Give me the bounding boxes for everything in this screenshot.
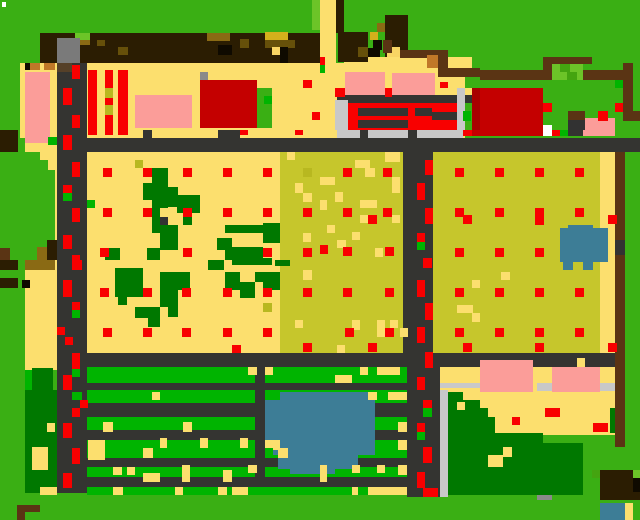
building xyxy=(417,130,463,138)
building xyxy=(457,402,465,410)
crop-dot xyxy=(263,328,272,337)
building xyxy=(480,360,533,392)
building xyxy=(335,100,348,130)
field-speck xyxy=(248,465,257,473)
grass-dot xyxy=(615,80,623,88)
road-dash xyxy=(423,447,432,463)
building xyxy=(480,417,495,433)
crop-dot xyxy=(143,288,152,297)
field-speck xyxy=(143,448,153,458)
field-speck xyxy=(360,200,377,208)
hedge-tree xyxy=(312,0,320,30)
crop-dot xyxy=(183,168,192,177)
crop-dot xyxy=(223,208,232,217)
crop-dot xyxy=(223,328,232,337)
field-speck xyxy=(320,177,335,185)
grass-blob xyxy=(25,370,32,390)
road-segment xyxy=(337,95,490,103)
road-dash xyxy=(72,115,80,128)
crop-dot xyxy=(455,248,464,257)
crop-dot xyxy=(455,328,464,337)
building xyxy=(408,130,417,138)
fence xyxy=(427,55,438,68)
crop-patch xyxy=(152,200,160,233)
road-dash xyxy=(417,183,425,200)
fence xyxy=(623,111,640,121)
hedge-tree xyxy=(272,47,280,55)
building xyxy=(472,88,480,130)
crop-dot xyxy=(535,168,544,177)
fence xyxy=(560,63,570,72)
grass-blob xyxy=(40,487,57,495)
crop-dot xyxy=(385,288,394,297)
road-dash xyxy=(417,327,425,343)
building xyxy=(358,120,408,128)
hedge-tree xyxy=(17,512,25,520)
road-dash xyxy=(72,310,80,318)
crop-dot xyxy=(383,168,392,177)
field-speck xyxy=(303,233,311,242)
crop-dot xyxy=(545,408,560,417)
building xyxy=(440,390,448,497)
hedge-tree xyxy=(97,40,105,46)
building xyxy=(465,77,480,88)
crop-dot xyxy=(143,208,152,217)
pond xyxy=(568,225,593,228)
field-speck xyxy=(398,465,407,475)
pond xyxy=(290,469,335,474)
crop-dot xyxy=(263,168,272,177)
road-dash xyxy=(72,369,80,377)
pond xyxy=(278,448,288,458)
crop-patch xyxy=(143,183,160,200)
road-dash xyxy=(417,242,425,250)
field-speck xyxy=(232,487,248,495)
grass-blob xyxy=(25,390,57,493)
crop-patch xyxy=(118,297,127,305)
crop-dot xyxy=(335,88,345,97)
crop-patch xyxy=(160,225,178,250)
hedge-tree xyxy=(0,278,18,288)
field-speck xyxy=(390,320,398,328)
field-speck xyxy=(385,152,400,162)
grass-dot xyxy=(48,137,57,145)
hedge-tree xyxy=(377,23,385,32)
crop-dot xyxy=(143,168,152,177)
field-speck xyxy=(392,177,400,193)
road-dash xyxy=(63,185,72,193)
fence xyxy=(480,70,552,80)
field-speck xyxy=(127,467,135,475)
crop-dot xyxy=(303,288,312,297)
field-speck xyxy=(377,367,400,375)
pond xyxy=(560,228,608,262)
crop-dot xyxy=(535,328,544,337)
road-dash xyxy=(63,423,72,438)
field-speck xyxy=(143,473,160,482)
crop-patch xyxy=(135,307,160,318)
field-speck xyxy=(335,375,352,383)
crop-patch xyxy=(160,168,168,208)
building xyxy=(600,383,615,391)
crop-dot xyxy=(320,245,328,254)
crop-dot xyxy=(312,112,320,120)
crop-dot xyxy=(543,103,552,112)
building xyxy=(360,130,368,138)
hedge-tree xyxy=(0,130,18,152)
crop-dot xyxy=(303,248,312,257)
building xyxy=(552,367,600,392)
crop-dot xyxy=(575,288,584,297)
field-speck xyxy=(183,422,192,432)
grass-blob xyxy=(47,423,55,432)
field-speck xyxy=(388,392,407,400)
building xyxy=(135,95,192,128)
field-speck xyxy=(327,225,335,233)
road-segment xyxy=(87,383,407,390)
field-speck xyxy=(303,270,312,280)
field-speck xyxy=(360,215,368,223)
crop-dot xyxy=(103,208,112,217)
building xyxy=(583,130,615,136)
crop-dot xyxy=(608,343,617,352)
building xyxy=(480,88,543,130)
road-dash xyxy=(72,392,82,400)
grass-blob xyxy=(48,170,55,240)
hedge-tree xyxy=(373,40,382,50)
crop-dot xyxy=(72,260,82,270)
field-speck xyxy=(375,248,383,257)
pond xyxy=(625,503,633,520)
crop-dot xyxy=(593,423,608,432)
road-dash xyxy=(425,160,433,175)
building xyxy=(200,80,257,128)
field-speck xyxy=(287,152,295,160)
crop-dot xyxy=(263,248,272,257)
crop-dot xyxy=(495,208,504,217)
building xyxy=(610,408,615,433)
building xyxy=(358,108,408,116)
road-dash xyxy=(57,327,65,335)
crop-dot xyxy=(368,343,377,352)
road-dash xyxy=(417,472,425,488)
hedge-tree xyxy=(240,39,249,48)
crop-dot xyxy=(440,82,448,88)
farm-map-canvas[interactable] xyxy=(0,0,640,520)
crop-dot xyxy=(535,208,544,225)
road-dash xyxy=(423,488,438,497)
crop-patch xyxy=(115,268,143,297)
building xyxy=(457,88,465,130)
building xyxy=(463,392,480,400)
crop-patch xyxy=(263,303,272,312)
crop-dot xyxy=(385,88,392,97)
road-dash xyxy=(72,162,80,177)
crop-dot xyxy=(385,328,394,337)
hedge-tree xyxy=(0,248,10,260)
grass-blob xyxy=(32,368,53,390)
road-dash xyxy=(63,473,72,488)
building xyxy=(543,130,552,136)
crop-dot xyxy=(343,208,352,217)
road-dash xyxy=(72,408,80,417)
building xyxy=(118,70,128,135)
pond xyxy=(265,400,375,455)
building xyxy=(472,130,480,136)
crop-dot xyxy=(182,288,191,297)
road-dash xyxy=(425,352,433,368)
road-segment xyxy=(218,130,240,138)
building xyxy=(105,105,113,115)
pond xyxy=(563,262,573,270)
field-speck xyxy=(335,192,343,202)
crop-dot xyxy=(495,328,504,337)
grass-blob xyxy=(18,260,25,272)
crop-dot xyxy=(182,328,191,337)
road-dash xyxy=(417,377,425,390)
field-speck xyxy=(103,422,113,432)
crop-dot xyxy=(183,208,192,217)
field-speck xyxy=(400,328,408,337)
crop-dot xyxy=(615,103,623,112)
building xyxy=(480,408,488,417)
road-dash xyxy=(63,88,72,105)
building xyxy=(57,38,80,63)
road-dash xyxy=(65,337,73,345)
crop-dot xyxy=(343,168,352,177)
field-speck xyxy=(200,438,208,448)
hedge-tree xyxy=(218,45,232,55)
field-speck xyxy=(248,367,257,375)
road-dash xyxy=(320,57,325,65)
road-dash xyxy=(72,448,80,464)
crop-dot xyxy=(240,130,248,135)
terrain-patch xyxy=(2,2,6,7)
crop-dot xyxy=(575,168,584,177)
hedge-tree xyxy=(118,47,128,55)
field-speck xyxy=(352,232,360,240)
crop-dot xyxy=(103,328,112,337)
field-speck xyxy=(218,487,227,495)
field-speck xyxy=(88,440,105,460)
road-segment xyxy=(160,217,168,225)
building xyxy=(568,130,583,136)
crop-dot xyxy=(535,248,544,257)
crop-dot xyxy=(345,328,354,337)
field-speck xyxy=(223,470,232,482)
field-speck xyxy=(368,487,407,495)
crop-dot xyxy=(223,168,232,177)
hedge-tree xyxy=(280,47,288,63)
building xyxy=(200,72,208,80)
hedge-tree xyxy=(633,470,640,478)
pond xyxy=(280,392,368,400)
field-speck xyxy=(355,160,370,168)
crop-dot xyxy=(598,111,608,121)
building xyxy=(392,73,435,95)
crop-dot xyxy=(263,208,272,217)
road-dash xyxy=(417,432,425,440)
road-dash xyxy=(72,302,80,310)
field-speck xyxy=(501,272,510,280)
field-speck xyxy=(368,392,377,400)
road-dash xyxy=(72,353,80,369)
crop-dot xyxy=(463,343,472,352)
field-speck xyxy=(240,438,248,448)
crop-patch xyxy=(275,260,290,266)
hedge-tree xyxy=(592,470,600,478)
road-dash xyxy=(423,258,432,268)
crop-dot xyxy=(303,343,312,352)
crop-dot xyxy=(303,80,312,88)
grass-dot xyxy=(87,200,95,208)
field-speck xyxy=(377,465,385,473)
field-speck xyxy=(152,392,160,400)
hedge-tree xyxy=(207,33,230,41)
field-speck xyxy=(113,487,123,495)
building xyxy=(415,108,432,116)
field-speck xyxy=(175,487,183,495)
field-speck xyxy=(352,465,360,473)
hedge-tree xyxy=(37,247,47,260)
crop-dot xyxy=(368,215,377,224)
grass-blob xyxy=(0,152,40,262)
road-dash xyxy=(425,303,433,320)
hedge-tree xyxy=(25,260,55,270)
building xyxy=(488,455,503,467)
crop-dot xyxy=(100,248,109,257)
building xyxy=(105,70,113,135)
crop-dot xyxy=(143,328,152,337)
crop-dot xyxy=(495,168,504,177)
field-speck xyxy=(337,345,345,353)
hedge-tree xyxy=(370,32,378,40)
hedge-tree xyxy=(265,32,288,40)
building xyxy=(88,70,97,135)
crop-patch xyxy=(168,307,178,317)
building xyxy=(552,130,560,136)
field-speck xyxy=(320,200,327,210)
crop-patch xyxy=(240,282,255,298)
crop-dot xyxy=(100,288,109,297)
road-dash xyxy=(320,65,325,73)
building xyxy=(568,120,585,130)
building xyxy=(503,447,512,457)
field-speck xyxy=(160,438,167,448)
crop-dot xyxy=(463,215,472,224)
field-speck xyxy=(457,305,473,313)
road-dash xyxy=(423,400,432,408)
field-speck xyxy=(392,215,400,223)
building xyxy=(480,130,543,136)
hedge-tree xyxy=(336,0,344,33)
grass-blob xyxy=(40,160,48,250)
building xyxy=(577,358,585,367)
hedge-tree xyxy=(17,505,40,512)
field-speck xyxy=(265,367,273,375)
building xyxy=(480,443,583,495)
crop-patch xyxy=(225,247,263,260)
field-speck xyxy=(360,367,368,375)
building xyxy=(615,240,625,255)
pond xyxy=(600,503,625,520)
road-dash xyxy=(417,233,425,242)
crop-patch xyxy=(303,168,312,177)
crop-dot xyxy=(495,248,504,257)
field-speck xyxy=(377,320,385,337)
building xyxy=(560,130,568,136)
crop-dot xyxy=(343,247,352,256)
hedge-tree xyxy=(0,260,18,270)
road-dash xyxy=(63,235,72,249)
road-segment xyxy=(82,353,615,367)
crop-patch xyxy=(135,160,143,168)
grass-blob xyxy=(32,447,48,470)
road-segment xyxy=(143,130,152,138)
road-dash xyxy=(423,408,432,417)
road-segment xyxy=(57,63,72,72)
crop-dot xyxy=(232,345,241,353)
fence xyxy=(583,70,623,80)
road-dash xyxy=(72,208,80,222)
crop-dot xyxy=(512,417,520,425)
pond xyxy=(583,262,593,270)
building xyxy=(337,130,360,138)
crop-dot xyxy=(263,288,272,297)
building xyxy=(432,112,457,120)
crop-dot xyxy=(495,288,504,297)
field-speck xyxy=(295,320,303,328)
pond xyxy=(265,448,273,458)
field-speck xyxy=(303,193,312,202)
crop-dot xyxy=(343,288,352,297)
road-dash xyxy=(425,208,433,224)
field-speck xyxy=(472,313,480,322)
field-speck xyxy=(398,422,407,432)
field-speck xyxy=(365,168,375,177)
building xyxy=(463,130,472,136)
pond xyxy=(278,455,358,469)
field-speck xyxy=(182,465,190,482)
crop-dot xyxy=(103,168,112,177)
building xyxy=(480,433,503,443)
fence xyxy=(615,152,625,447)
field-speck xyxy=(352,487,358,495)
hedge-tree xyxy=(383,40,392,53)
road-dash xyxy=(63,375,72,390)
crop-dot xyxy=(608,215,617,224)
building xyxy=(25,72,50,143)
building xyxy=(257,88,272,128)
crop-dot xyxy=(295,130,303,135)
crop-patch xyxy=(148,318,160,327)
crop-dot xyxy=(575,328,584,337)
building xyxy=(537,383,552,391)
crop-dot xyxy=(455,288,464,297)
crop-dot xyxy=(383,208,392,217)
building xyxy=(440,383,480,388)
crop-dot xyxy=(385,247,394,256)
field-speck xyxy=(113,467,122,475)
road-dash xyxy=(63,193,72,201)
hedge-tree xyxy=(358,47,368,57)
field-speck xyxy=(398,440,407,450)
hedge-tree xyxy=(22,280,30,288)
crop-dot xyxy=(535,343,544,352)
crop-dot xyxy=(183,248,192,257)
building xyxy=(345,72,385,95)
road-dash xyxy=(63,280,72,297)
